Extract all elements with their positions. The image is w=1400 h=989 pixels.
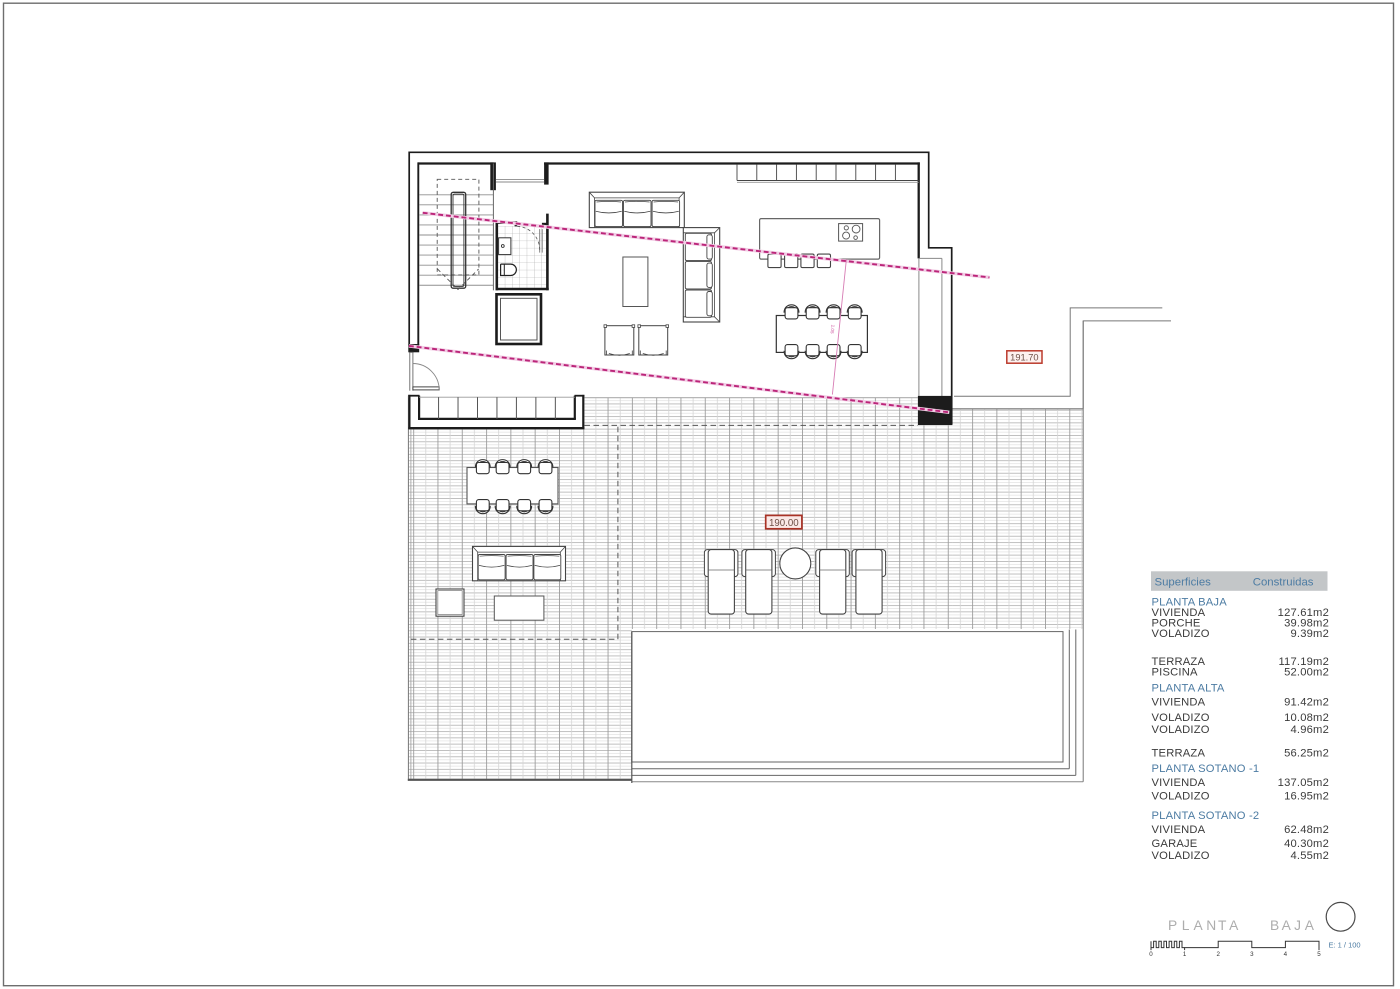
svg-text:TERRAZA: TERRAZA — [1152, 748, 1206, 760]
svg-text:A: A — [1229, 918, 1239, 933]
svg-text:4: 4 — [1284, 951, 1288, 958]
svg-text:B: B — [1270, 918, 1279, 933]
svg-text:10.08m2: 10.08m2 — [1284, 712, 1329, 724]
svg-text:1.05: 1.05 — [830, 324, 836, 334]
svg-text:40.30m2: 40.30m2 — [1284, 838, 1329, 850]
svg-text:137.05m2: 137.05m2 — [1278, 777, 1329, 789]
svg-text:Construidas: Construidas — [1253, 576, 1314, 588]
svg-text:A: A — [1194, 918, 1204, 933]
svg-text:E: 1 / 100: E: 1 / 100 — [1329, 941, 1361, 950]
svg-text:190.00: 190.00 — [769, 518, 799, 529]
svg-text:J: J — [1294, 918, 1301, 933]
svg-text:62.48m2: 62.48m2 — [1284, 824, 1329, 836]
svg-text:A: A — [1282, 918, 1292, 933]
svg-text:VIVIENDA: VIVIENDA — [1152, 824, 1206, 836]
svg-text:P: P — [1168, 918, 1177, 933]
svg-text:PISCINA: PISCINA — [1152, 667, 1198, 679]
svg-text:0: 0 — [1149, 951, 1153, 958]
svg-text:A: A — [1305, 918, 1315, 933]
svg-text:5: 5 — [1317, 951, 1321, 958]
svg-text:2: 2 — [1216, 951, 1220, 958]
svg-text:56.25m2: 56.25m2 — [1284, 748, 1329, 760]
svg-text:VOLADIZO: VOLADIZO — [1152, 850, 1210, 862]
svg-text:4.55m2: 4.55m2 — [1290, 850, 1329, 862]
svg-text:3: 3 — [1250, 951, 1254, 958]
svg-text:VOLADIZO: VOLADIZO — [1152, 712, 1210, 724]
svg-text:Superficies: Superficies — [1155, 576, 1212, 588]
svg-text:T: T — [1218, 918, 1227, 933]
svg-text:1: 1 — [1183, 951, 1187, 958]
svg-text:191.70: 191.70 — [1010, 352, 1038, 362]
svg-text:91.42m2: 91.42m2 — [1284, 697, 1329, 709]
svg-text:PLANTA SOTANO -2: PLANTA SOTANO -2 — [1152, 810, 1260, 822]
svg-text:VOLADIZO: VOLADIZO — [1152, 628, 1210, 640]
svg-text:PLANTA SOTANO -1: PLANTA SOTANO -1 — [1152, 763, 1260, 775]
svg-text:PLANTA ALTA: PLANTA ALTA — [1152, 683, 1225, 695]
svg-text:VOLADIZO: VOLADIZO — [1152, 791, 1210, 803]
svg-text:4.96m2: 4.96m2 — [1290, 724, 1329, 736]
svg-text:9.39m2: 9.39m2 — [1290, 628, 1329, 640]
svg-text:GARAJE: GARAJE — [1152, 838, 1198, 850]
svg-text:16.95m2: 16.95m2 — [1284, 791, 1329, 803]
svg-text:VIVIENDA: VIVIENDA — [1152, 697, 1206, 709]
svg-text:L: L — [1182, 918, 1190, 933]
svg-text:VIVIENDA: VIVIENDA — [1152, 777, 1206, 789]
svg-text:N: N — [1206, 918, 1216, 933]
svg-text:VOLADIZO: VOLADIZO — [1152, 724, 1210, 736]
svg-text:52.00m2: 52.00m2 — [1284, 667, 1329, 679]
